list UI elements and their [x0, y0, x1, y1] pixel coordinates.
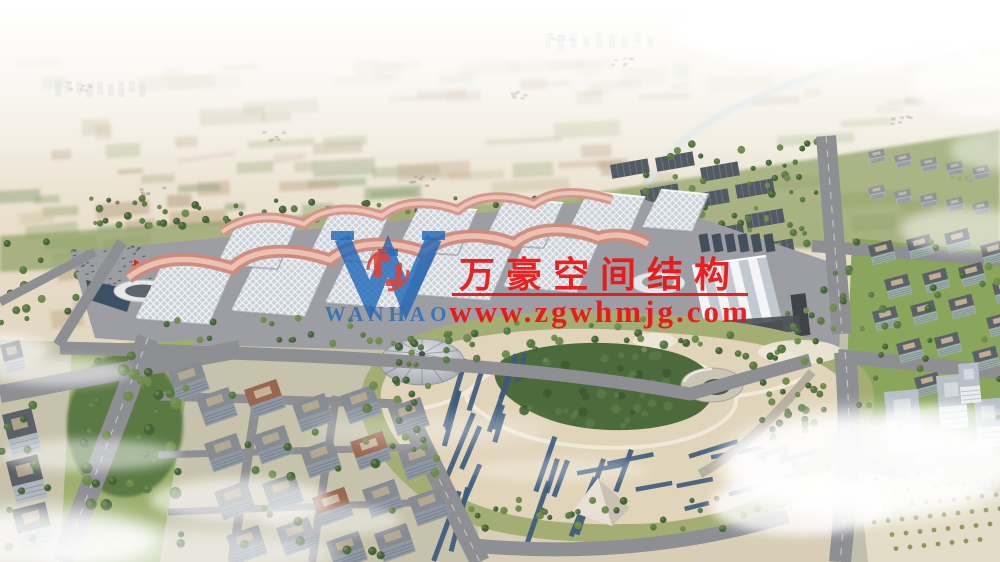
tree-highlight [464, 335, 468, 339]
tree-highlight [817, 391, 820, 394]
tree-highlight [448, 332, 450, 334]
tree-highlight [874, 376, 876, 378]
tree-highlight [575, 522, 578, 525]
tree-highlight [883, 344, 886, 347]
tree-highlight [750, 363, 754, 367]
tree-highlight [783, 164, 785, 166]
tree-highlight [83, 477, 88, 482]
tree-highlight [841, 294, 844, 297]
tree-highlight [775, 350, 777, 352]
tree-highlight [701, 179, 704, 182]
tree-highlight [97, 206, 100, 209]
tree-highlight [822, 408, 825, 411]
forest-tree [573, 410, 579, 416]
tree-highlight [377, 203, 379, 205]
tree-highlight [800, 146, 803, 149]
tree-highlight [997, 377, 1000, 380]
tree-highlight [434, 456, 437, 459]
tree-highlight [923, 356, 926, 359]
tree-highlight [804, 308, 807, 311]
tree-highlight [409, 391, 412, 394]
tree-highlight [25, 317, 27, 319]
tree-highlight [21, 416, 24, 419]
tree-highlight [95, 398, 98, 401]
tree-highlight [802, 358, 806, 362]
tree-highlight [414, 363, 416, 365]
tree-highlight [253, 467, 257, 471]
plaza-tree [894, 546, 899, 551]
plaza-tree [950, 540, 955, 545]
tree-highlight [140, 196, 143, 199]
tree-highlight [791, 324, 794, 327]
tree-highlight [795, 339, 798, 342]
tree-highlight [638, 336, 641, 339]
tree-highlight [788, 223, 791, 226]
tree-highlight [690, 498, 692, 500]
tree-highlight [224, 216, 227, 219]
tree-highlight [5, 241, 8, 244]
tree-highlight [766, 160, 769, 163]
tree-highlight [397, 360, 400, 363]
tree-highlight [767, 353, 770, 356]
tree-highlight [880, 306, 884, 310]
tree-highlight [809, 313, 812, 316]
tree-highlight [288, 473, 292, 477]
tree-highlight [431, 469, 435, 473]
tree-highlight [795, 328, 798, 331]
tree-highlight [183, 210, 186, 213]
tree-highlight [576, 510, 579, 513]
tree-highlight [344, 547, 348, 551]
tree-highlight [270, 322, 272, 324]
tree-highlight [391, 444, 394, 447]
tree-highlight [765, 216, 767, 218]
tree-highlight [406, 406, 409, 409]
forest-tree [611, 404, 620, 413]
tree-highlight [192, 202, 196, 206]
plaza-tree [974, 523, 979, 528]
forest-tree [648, 399, 657, 408]
tree-highlight [409, 350, 412, 353]
tree-highlight [161, 220, 164, 223]
tree-highlight [767, 392, 770, 395]
tree-highlight [145, 369, 149, 373]
tree-highlight [280, 207, 284, 211]
forest-tree [614, 392, 619, 397]
plaza-tree [956, 511, 961, 516]
plaza-tree [932, 528, 937, 533]
rooftop-structure [944, 382, 959, 397]
tree-highlight [736, 351, 739, 354]
tree-highlight [931, 285, 934, 288]
tree-highlight [895, 322, 898, 325]
tree-highlight [778, 145, 781, 148]
tree-highlight [147, 223, 150, 226]
tree-highlight [109, 477, 113, 481]
tree-highlight [879, 353, 882, 356]
tree-highlight [800, 198, 803, 201]
tree-highlight [444, 348, 447, 351]
tree-highlight [543, 510, 546, 513]
tree-highlight [566, 513, 569, 516]
tree-highlight [543, 359, 547, 363]
tree-highlight [778, 346, 782, 350]
tree-highlight [285, 444, 289, 448]
tree-highlight [133, 201, 135, 203]
tree-highlight [882, 323, 885, 326]
tree-highlight [791, 230, 794, 233]
tree-highlight [274, 199, 276, 201]
forest-tree [555, 408, 562, 415]
tree-highlight [494, 507, 496, 509]
forest-tree [618, 352, 625, 359]
tree-highlight [556, 338, 560, 342]
tree-highlight [125, 392, 130, 397]
tree-highlight [86, 428, 91, 433]
tree-highlight [867, 403, 870, 406]
tree-highlight [661, 517, 664, 520]
tree-highlight [805, 141, 808, 144]
tree-highlight [811, 387, 814, 390]
tree-highlight [207, 336, 209, 338]
forest-tree [601, 354, 609, 362]
tree-highlight [372, 460, 376, 464]
tree-highlight [154, 410, 157, 413]
tree-highlight [158, 205, 160, 207]
cloud [0, 439, 180, 471]
tree-highlight [714, 159, 717, 162]
tree-highlight [537, 513, 540, 516]
tree-highlight [90, 197, 92, 199]
tree-highlight [230, 392, 233, 395]
tree-highlight [378, 552, 382, 556]
tree-highlight [786, 312, 788, 314]
tree-highlight [292, 206, 295, 209]
tree-highlight [404, 377, 407, 380]
tree-highlight [738, 147, 741, 150]
tree-highlight [803, 232, 805, 234]
tree-highlight [986, 264, 989, 267]
tree-highlight [13, 307, 17, 311]
tree-highlight [446, 338, 449, 341]
tree-highlight [841, 299, 844, 302]
tree-highlight [87, 500, 92, 505]
tree-highlight [960, 273, 963, 276]
tree-highlight [673, 175, 676, 178]
tree-highlight [125, 213, 129, 217]
tree-highlight [716, 348, 719, 351]
tree-highlight [746, 216, 749, 219]
tree-highlight [857, 403, 860, 406]
plaza-tree [908, 545, 913, 550]
tree-highlight [590, 498, 593, 501]
tree-highlight [804, 241, 807, 244]
tree-highlight [167, 442, 172, 447]
tree-highlight [689, 141, 692, 144]
tree-highlight [643, 189, 646, 192]
rooftop-structure [963, 368, 974, 379]
tree-highlight [136, 435, 141, 440]
tree-highlight [683, 340, 687, 344]
tree-highlight [821, 384, 824, 387]
tree-highlight [391, 342, 393, 344]
tree-highlight [89, 403, 94, 408]
tree-highlight [239, 212, 241, 214]
tree-highlight [754, 207, 756, 209]
tree-highlight [454, 197, 456, 199]
forest-tree [527, 405, 532, 410]
tree-highlight [797, 175, 800, 178]
cloud [670, 2, 850, 58]
tree-highlight [234, 204, 236, 206]
tree-highlight [412, 400, 415, 403]
tree-highlight [93, 480, 97, 484]
tree-highlight [681, 527, 684, 530]
tree-highlight [751, 166, 753, 168]
plaza-tree [936, 542, 941, 547]
tree-highlight [44, 239, 47, 242]
tree-highlight [854, 240, 857, 243]
tree-highlight [116, 201, 118, 203]
tree-highlight [982, 337, 985, 340]
tree-highlight [421, 444, 425, 448]
tree-highlight [548, 516, 550, 518]
tree-highlight [621, 498, 624, 501]
tree-highlight [472, 331, 475, 334]
tree-highlight [748, 228, 750, 230]
tree-highlight [412, 448, 414, 450]
tree-highlight [719, 221, 722, 224]
cloud [470, 458, 650, 482]
tree-highlight [174, 218, 177, 221]
tree-highlight [102, 501, 107, 506]
aerial-architectural-rendering: WANHAO 万豪空间结构 www.zgwhmjg.com [0, 0, 1000, 562]
tree-highlight [144, 486, 148, 490]
forest-tree [632, 353, 639, 360]
tree-highlight [390, 508, 393, 511]
brand-url: www.zgwhmjg.com [449, 294, 751, 329]
tree-highlight [175, 469, 178, 472]
tree-highlight [103, 219, 106, 222]
tree-highlight [675, 148, 678, 151]
tree-highlight [408, 337, 411, 340]
cloud [710, 475, 890, 535]
tree-highlight [19, 488, 22, 491]
plaza-tree [918, 529, 923, 534]
tree-highlight [769, 399, 772, 402]
tree-highlight [790, 191, 792, 193]
tree-highlight [918, 366, 921, 369]
tree-highlight [203, 217, 206, 220]
tree-highlight [406, 210, 409, 213]
tree-highlight [143, 202, 145, 204]
tree-highlight [128, 353, 132, 357]
tree-highlight [760, 418, 763, 421]
tree-highlight [23, 305, 27, 309]
tree-highlight [364, 405, 368, 409]
tree-highlight [772, 176, 775, 179]
tree-highlight [145, 425, 150, 430]
tree-highlight [369, 548, 373, 552]
tree-highlight [308, 332, 311, 335]
tree-highlight [831, 327, 833, 329]
rendering-canvas: WANHAO 万豪空间结构 www.zgwhmjg.com [0, 0, 1000, 562]
tree-highlight [30, 402, 34, 406]
plaza-tree [970, 509, 975, 514]
tree-highlight [107, 198, 109, 200]
tree-highlight [394, 397, 398, 401]
tree-highlight [291, 338, 294, 341]
tree-highlight [336, 466, 339, 469]
tree-highlight [806, 383, 809, 386]
tree-highlight [103, 432, 107, 436]
tree-highlight [743, 354, 746, 357]
tree-highlight [163, 210, 165, 212]
tree-highlight [796, 393, 798, 395]
forest-tree [617, 365, 624, 372]
tree-highlight [869, 293, 872, 296]
tree-highlight [309, 200, 312, 203]
tree-highlight [720, 526, 723, 529]
tree-highlight [262, 210, 264, 212]
forest-tree [579, 388, 587, 396]
tree-highlight [782, 172, 785, 175]
tree-highlight [785, 176, 788, 179]
plaza-tree [960, 525, 965, 530]
tree-highlight [727, 332, 731, 336]
tree-highlight [517, 498, 520, 501]
tree-highlight [367, 338, 370, 341]
forest-tree [648, 352, 656, 360]
plaza-tree [988, 522, 993, 527]
tree-highlight [171, 399, 176, 404]
tree-highlight [469, 507, 472, 510]
brand-name-cn: 万豪空间结构 [459, 255, 741, 296]
tree-highlight [813, 339, 816, 342]
forest-tree [639, 393, 644, 398]
tree-highlight [361, 333, 364, 336]
tree-highlight [693, 336, 696, 339]
tree-highlight [698, 342, 700, 344]
tree-highlight [625, 338, 628, 341]
tree-highlight [157, 221, 160, 224]
tree-highlight [748, 182, 750, 184]
tree-highlight [846, 266, 850, 270]
tree-highlight [860, 327, 862, 329]
cloud [310, 416, 550, 444]
tree-highlight [370, 382, 374, 386]
forest-tree [597, 389, 607, 399]
tree-highlight [501, 508, 504, 511]
tree-highlight [651, 525, 654, 528]
logo-wordmark: WANHAO [325, 302, 452, 326]
tree-highlight [935, 292, 938, 295]
tree-highlight [5, 424, 8, 427]
cloud [260, 504, 400, 536]
tree-highlight [814, 191, 816, 193]
tree-highlight [140, 219, 143, 222]
forest-tree [642, 410, 648, 416]
tree-highlight [602, 507, 605, 510]
forest-tree [543, 389, 552, 398]
tree-highlight [821, 287, 824, 290]
forest-tree [633, 404, 641, 412]
tree-highlight [197, 207, 199, 209]
tree-highlight [474, 356, 477, 359]
tree-highlight [261, 319, 263, 321]
tree-highlight [699, 154, 701, 156]
tree-highlight [296, 316, 299, 319]
tree-highlight [928, 339, 930, 341]
tree-highlight [552, 335, 555, 338]
plaza-tree [890, 532, 895, 537]
forest-tree [578, 407, 588, 417]
tree-highlight [73, 295, 76, 298]
tree-highlight [830, 305, 834, 309]
tree-highlight [533, 347, 536, 350]
tree-highlight [20, 267, 24, 271]
tree-highlight [679, 339, 681, 341]
plaza-tree [978, 537, 983, 542]
tree-highlight [175, 318, 178, 321]
tree-highlight [141, 385, 144, 388]
field-patch [167, 194, 192, 208]
forest-tree [663, 368, 672, 377]
plaza-tree [984, 508, 989, 513]
tree-highlight [793, 160, 795, 162]
tree-highlight [800, 227, 802, 229]
tree-highlight [668, 154, 671, 157]
tree-highlight [614, 508, 617, 511]
tree-highlight [39, 258, 42, 261]
village-roof [146, 192, 150, 195]
village-roof [141, 192, 145, 195]
tree-highlight [516, 506, 519, 509]
tree-highlight [980, 282, 983, 285]
tree-highlight [926, 306, 929, 309]
forest-tree [663, 401, 672, 410]
plaza-tree [922, 543, 927, 548]
tree-highlight [817, 358, 820, 361]
tree-highlight [773, 356, 776, 359]
forest-tree [624, 417, 630, 423]
tree-highlight [642, 347, 645, 350]
tree-highlight [45, 485, 48, 488]
tree-highlight [127, 480, 131, 484]
tree-highlight [130, 370, 135, 375]
tree-highlight [426, 384, 429, 387]
tree-highlight [635, 330, 639, 334]
tree-highlight [528, 340, 532, 344]
forest-tree [585, 418, 594, 427]
plaza-tree [946, 526, 951, 531]
tree-highlight [376, 338, 379, 341]
tree-highlight [783, 378, 786, 381]
tree-highlight [503, 351, 507, 355]
tree-highlight [482, 525, 485, 528]
tree-highlight [211, 319, 214, 322]
tree-highlight [65, 309, 68, 312]
tree-highlight [197, 337, 200, 340]
plaza-tree [964, 539, 969, 544]
tree-highlight [761, 380, 764, 383]
tree-highlight [470, 342, 473, 345]
tree-highlight [407, 362, 409, 364]
forest-tree [630, 410, 635, 415]
tree-highlight [39, 296, 43, 300]
tree-highlight [994, 279, 997, 282]
tree-highlight [330, 341, 333, 344]
